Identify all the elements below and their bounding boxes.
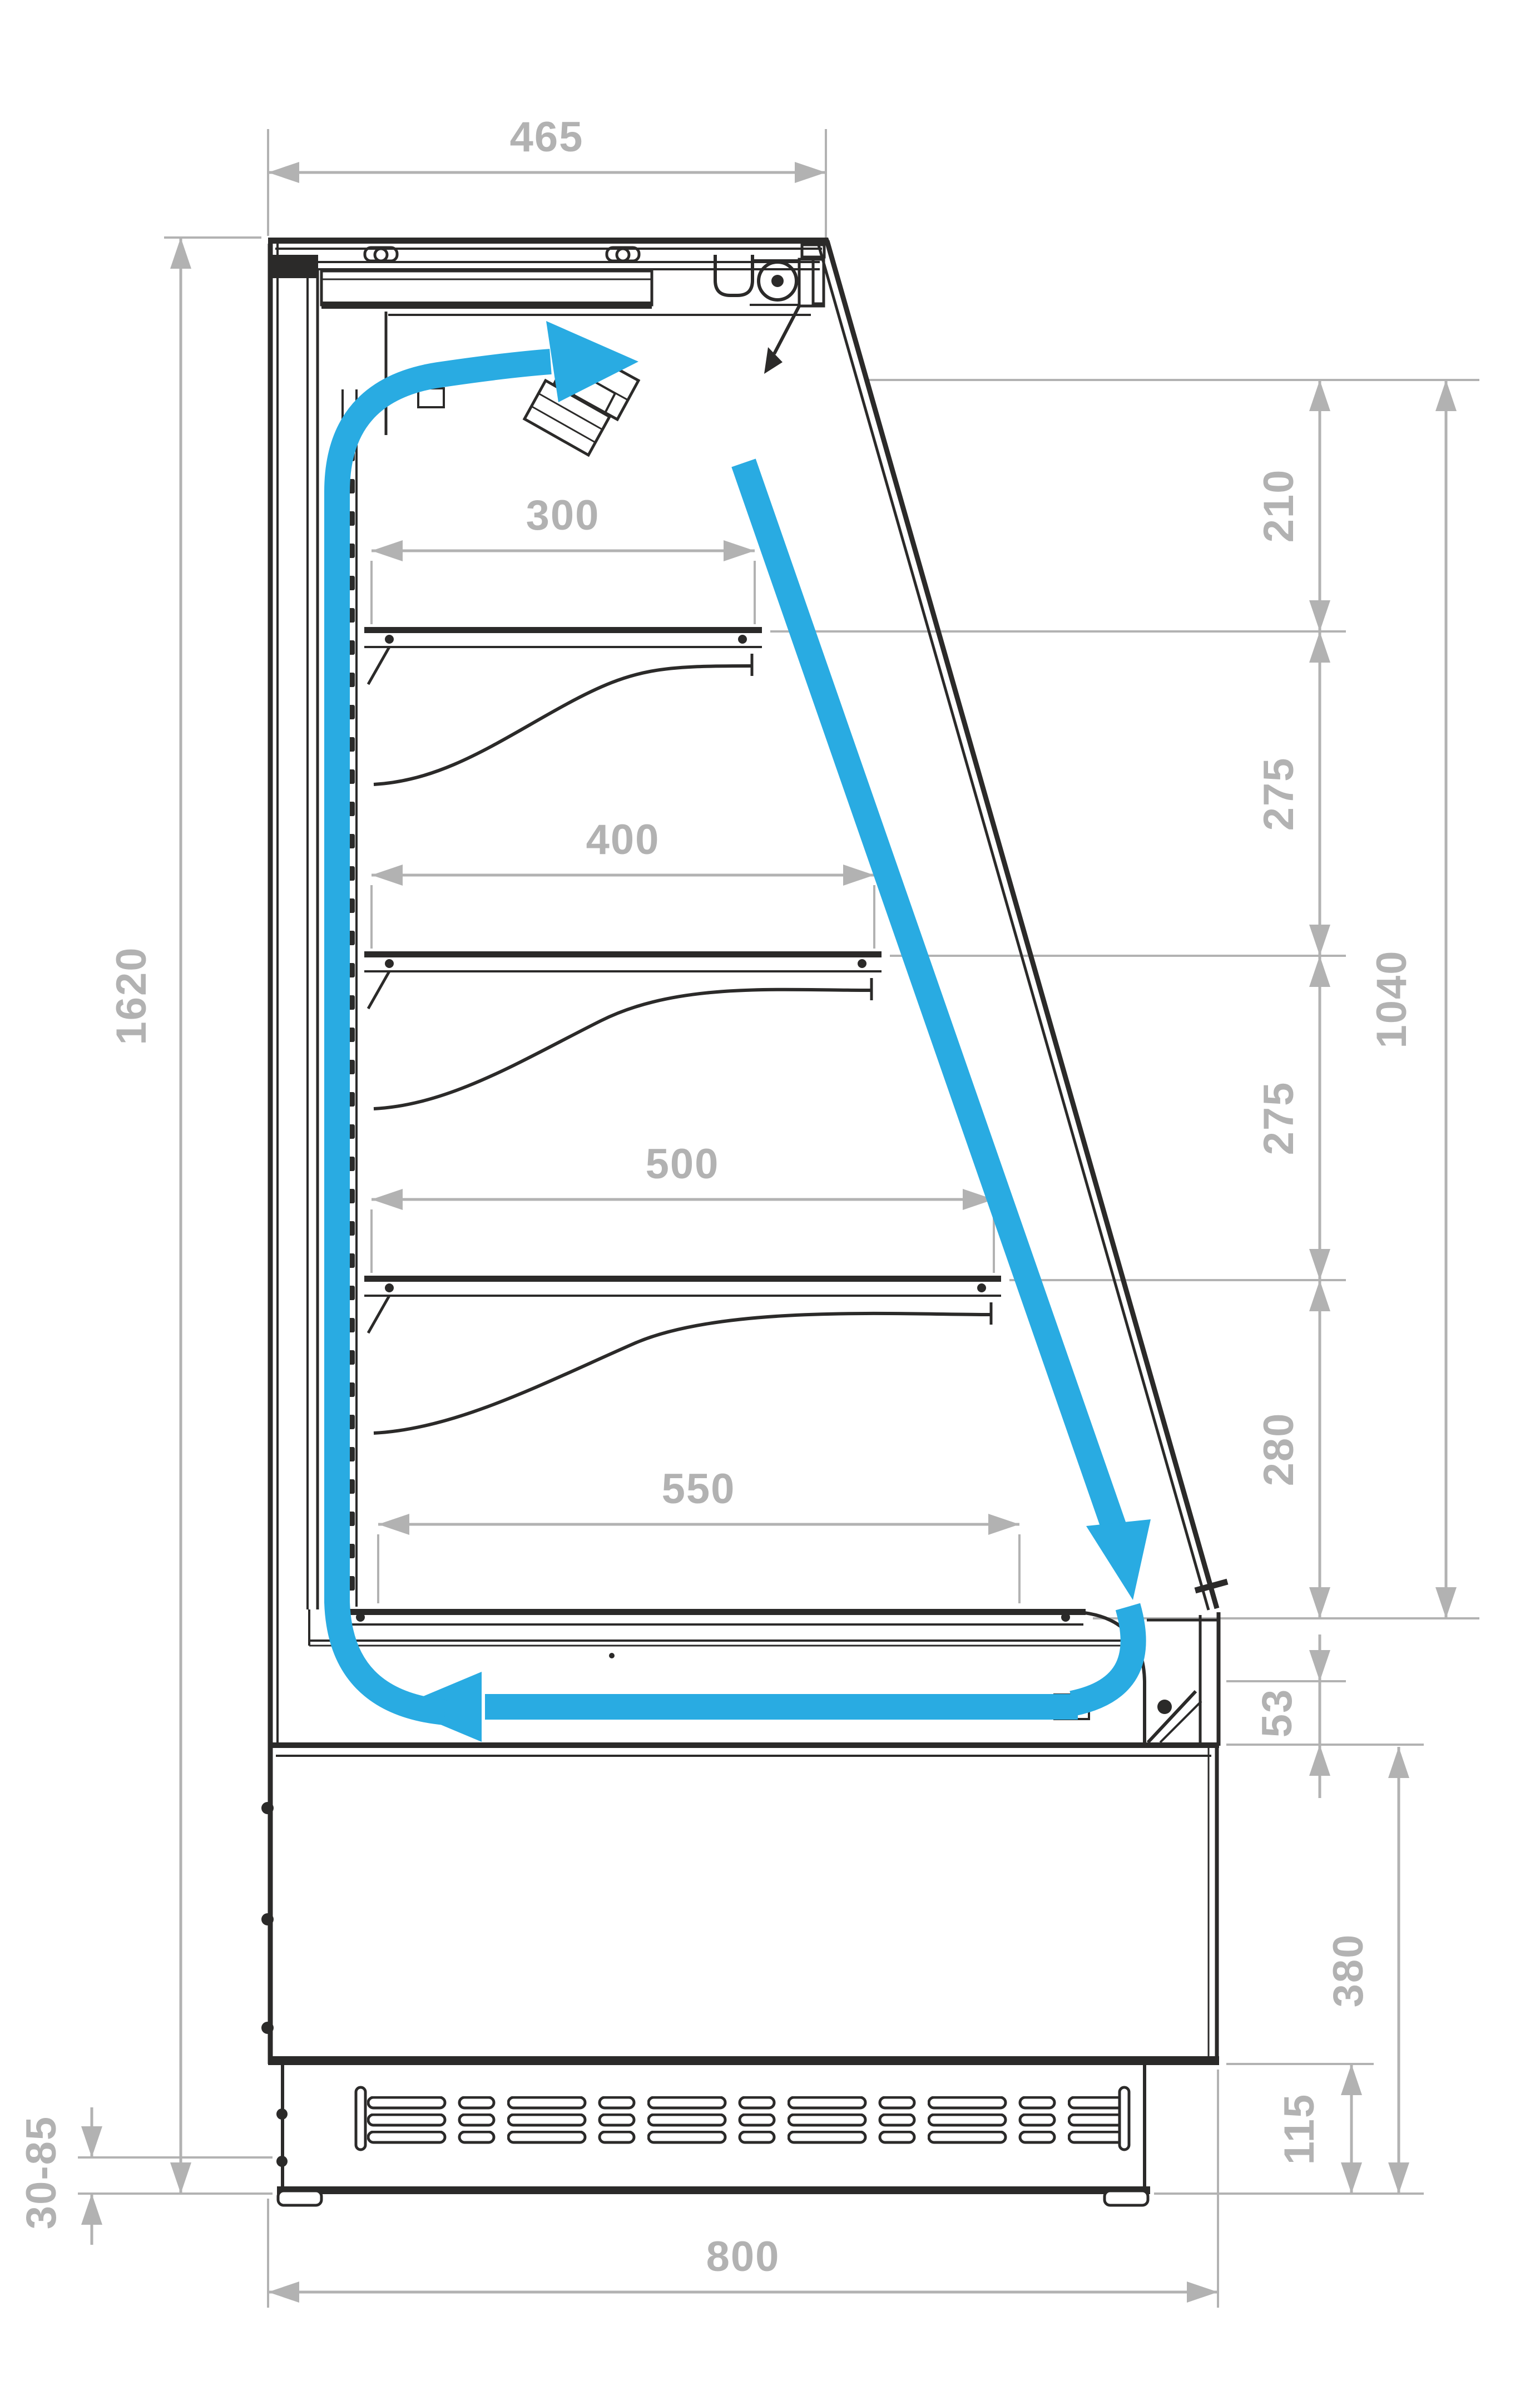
dimension-400: 400	[372, 816, 874, 886]
display-case-cross-section-diagram: 465 210 275 275 280 1040	[0, 0, 1540, 2400]
dim-label-53: 53	[1254, 1688, 1301, 1738]
dim-label-550: 550	[662, 1465, 736, 1513]
dimension-465: 465	[268, 113, 826, 183]
foot-left	[278, 2191, 321, 2205]
vent-slot-left	[356, 2087, 365, 2150]
vent-grille	[367, 2096, 1119, 2145]
dim-label-30-85: 30-85	[18, 2116, 65, 2229]
bottom-deck	[309, 1609, 1145, 1658]
shelf-3	[364, 1276, 1001, 1433]
vent-slot-right	[1120, 2087, 1129, 2150]
glass-front	[819, 241, 1227, 1610]
shelf-1	[364, 627, 762, 784]
dim-label-800: 800	[706, 2233, 780, 2280]
dimension-layer: 465 210 275 275 280 1040	[18, 113, 1479, 2308]
lamp-profile	[715, 255, 752, 295]
dim-label-1040: 1040	[1368, 950, 1415, 1048]
dim-label-400: 400	[586, 816, 660, 863]
airflow-layer	[337, 321, 1151, 1742]
back-wall	[270, 244, 318, 2064]
dimension-500: 500	[372, 1140, 994, 1210]
dim-label-300: 300	[526, 492, 600, 539]
light-fixture	[321, 271, 652, 305]
airflow-return-bend	[1072, 1607, 1133, 1703]
dim-label-380: 380	[1325, 1934, 1372, 2008]
top-panel	[268, 238, 830, 244]
dim-label-275-upper: 275	[1255, 757, 1303, 831]
airflow-bottom-arrow	[398, 1672, 1078, 1742]
dimension-300: 300	[372, 492, 755, 561]
cabinet-outline-layer	[261, 238, 1227, 2205]
dim-label-465: 465	[510, 113, 584, 161]
dim-label-210: 210	[1255, 469, 1303, 543]
dimension-1040: 1040	[1368, 380, 1457, 1618]
dimension-115: 115	[1276, 2064, 1362, 2194]
airflow-glass-curtain-arrow	[744, 463, 1151, 1600]
dim-label-280: 280	[1255, 1413, 1303, 1487]
foot-right	[1105, 2191, 1148, 2205]
dim-label-1620: 1620	[108, 946, 155, 1045]
fan-discharge-arrow	[764, 306, 799, 374]
dimension-550: 550	[378, 1465, 1019, 1535]
dimension-53: 53	[1254, 1634, 1330, 1798]
extension-lines	[78, 129, 1479, 2308]
plinth	[277, 2065, 1150, 2205]
dim-label-115: 115	[1276, 2093, 1323, 2165]
dimension-380: 380	[1325, 1747, 1409, 2194]
dimension-30-85: 30-85	[18, 2107, 102, 2245]
dimension-1620: 1620	[108, 238, 191, 2194]
dim-label-275-lower: 275	[1255, 1082, 1303, 1155]
shelf-2	[364, 951, 882, 1109]
dimension-800: 800	[268, 2233, 1218, 2303]
dim-label-500: 500	[646, 1140, 720, 1188]
dimension-right-chain: 210 275 275 280	[1255, 380, 1330, 1618]
